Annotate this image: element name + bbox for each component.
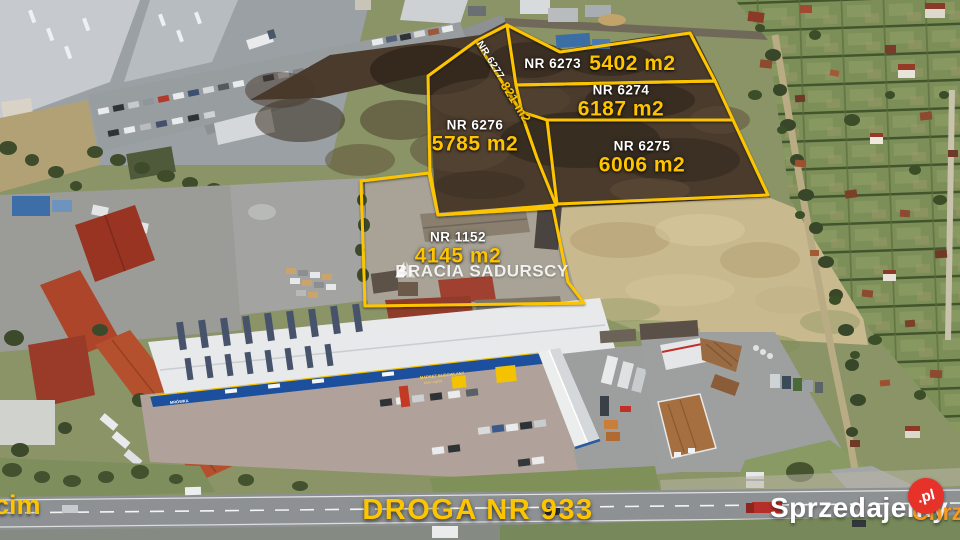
road-name-label: DROGA NR 933 [362, 494, 593, 526]
plot-label-1152: NR 1152 4145 m2 [415, 230, 501, 269]
plot-label-6274: NR 6274 6187 m2 [578, 83, 664, 122]
plot-label-6276: NR 6276 5785 m2 [432, 118, 518, 157]
direction-label-left: cim [0, 490, 41, 521]
aerial-photo: MRÓWKA MARKET BUDOWLANY dom i ogród [0, 0, 960, 540]
storage-yard-center [230, 178, 372, 315]
plot-label-6273: NR 6273 5402 m2 [524, 52, 675, 76]
bracia-sadurscy-logo-icon [395, 261, 415, 277]
plot-label-6275: NR 6275 6006 m2 [599, 139, 685, 178]
